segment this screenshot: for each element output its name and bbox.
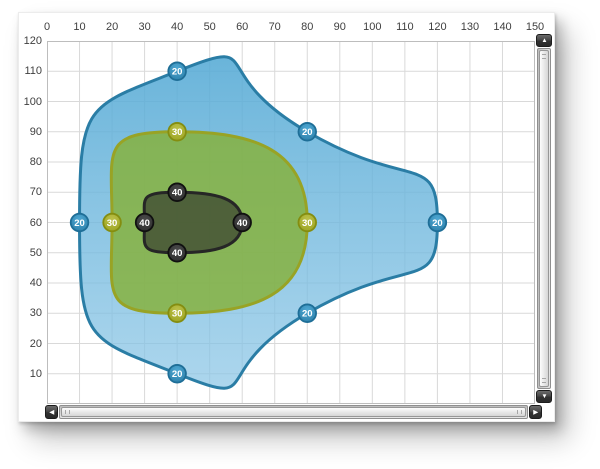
marker-level-30[interactable]: 30 [298,214,316,232]
down-arrow-icon: ▼ [541,393,547,399]
y-tick-label: 120 [24,35,42,47]
horizontal-scrollbar-track[interactable] [59,405,528,419]
marker-label: 40 [172,188,183,199]
y-tick-label: 90 [30,126,42,138]
y-tick-label: 60 [30,217,42,229]
scroll-up-button[interactable]: ▲ [536,34,552,47]
x-tick-label: 10 [73,21,85,34]
screenshot-canvas: 0102030405060708090100110120130140150 12… [0,0,600,469]
x-tick-label: 150 [526,21,544,34]
y-tick-label: 50 [30,247,42,259]
x-tick-label: 90 [334,21,346,34]
marker-level-40[interactable]: 40 [136,214,154,232]
x-tick-label: 20 [106,21,118,34]
marker-label: 20 [432,218,443,229]
scroll-right-button[interactable]: ▶ [529,405,542,419]
marker-label: 40 [237,218,248,229]
marker-label: 20 [74,218,85,229]
right-arrow-icon: ▶ [533,409,538,415]
x-tick-label: 130 [461,21,479,34]
marker-level-40[interactable]: 40 [168,183,186,201]
marker-label: 20 [172,67,183,78]
scroll-left-button[interactable]: ◀ [45,405,58,419]
marker-level-20[interactable]: 20 [168,62,186,80]
contour-area-40[interactable] [144,192,242,253]
x-tick-label: 140 [493,21,511,34]
x-tick-label: 30 [138,21,150,34]
y-axis-labels: 120110100908070605040302010 [19,41,44,404]
marker-level-20[interactable]: 20 [298,123,316,141]
marker-label: 30 [107,218,118,229]
x-tick-label: 50 [204,21,216,34]
y-tick-label: 10 [30,368,42,380]
up-arrow-icon: ▲ [541,37,547,43]
thumb-grip [542,378,546,383]
marker-level-30[interactable]: 30 [168,304,186,322]
marker-label: 30 [302,218,313,229]
thumb-grip [517,410,522,414]
x-tick-label: 60 [236,21,248,34]
marker-label: 20 [302,309,313,320]
x-tick-label: 40 [171,21,183,34]
marker-label: 30 [172,127,183,138]
y-tick-label: 80 [30,156,42,168]
marker-level-20[interactable]: 20 [168,365,186,383]
y-tick-label: 70 [30,186,42,198]
left-arrow-icon: ◀ [49,409,54,415]
marker-level-40[interactable]: 40 [168,244,186,262]
marker-label: 40 [139,218,150,229]
y-tick-label: 100 [24,96,42,108]
thumb-grip [542,54,546,59]
marker-level-20[interactable]: 20 [429,214,447,232]
x-tick-label: 70 [269,21,281,34]
y-tick-label: 20 [30,338,42,350]
marker-level-30[interactable]: 30 [168,123,186,141]
vertical-scrollbar-thumb[interactable] [539,50,549,387]
marker-level-20[interactable]: 20 [298,304,316,322]
marker-label: 20 [172,369,183,380]
marker-level-20[interactable]: 20 [71,214,89,232]
vertical-scrollbar[interactable]: ▲ ▼ [536,34,552,403]
thumb-grip [65,410,70,414]
marker-level-30[interactable]: 30 [103,214,121,232]
horizontal-scrollbar-thumb[interactable] [61,407,526,417]
y-tick-label: 110 [24,65,42,77]
horizontal-scrollbar[interactable]: ◀ ▶ [45,405,542,419]
scroll-down-button[interactable]: ▼ [536,390,552,403]
x-tick-label: 100 [363,21,381,34]
marker-label: 30 [172,309,183,320]
marker-label: 20 [302,127,313,138]
y-tick-label: 40 [30,277,42,289]
marker-level-40[interactable]: 40 [233,214,251,232]
chart-window: 0102030405060708090100110120130140150 12… [18,12,555,422]
x-axis-labels: 0102030405060708090100110120130140150 [47,21,535,36]
vertical-scrollbar-track[interactable] [537,48,551,389]
y-tick-label: 30 [30,307,42,319]
x-tick-label: 120 [428,21,446,34]
x-tick-label: 110 [396,21,414,34]
x-tick-label: 80 [301,21,313,34]
x-tick-label: 0 [44,21,50,34]
marker-label: 40 [172,248,183,259]
contour-plot[interactable]: 2020202020203030303040404040 [47,41,535,404]
